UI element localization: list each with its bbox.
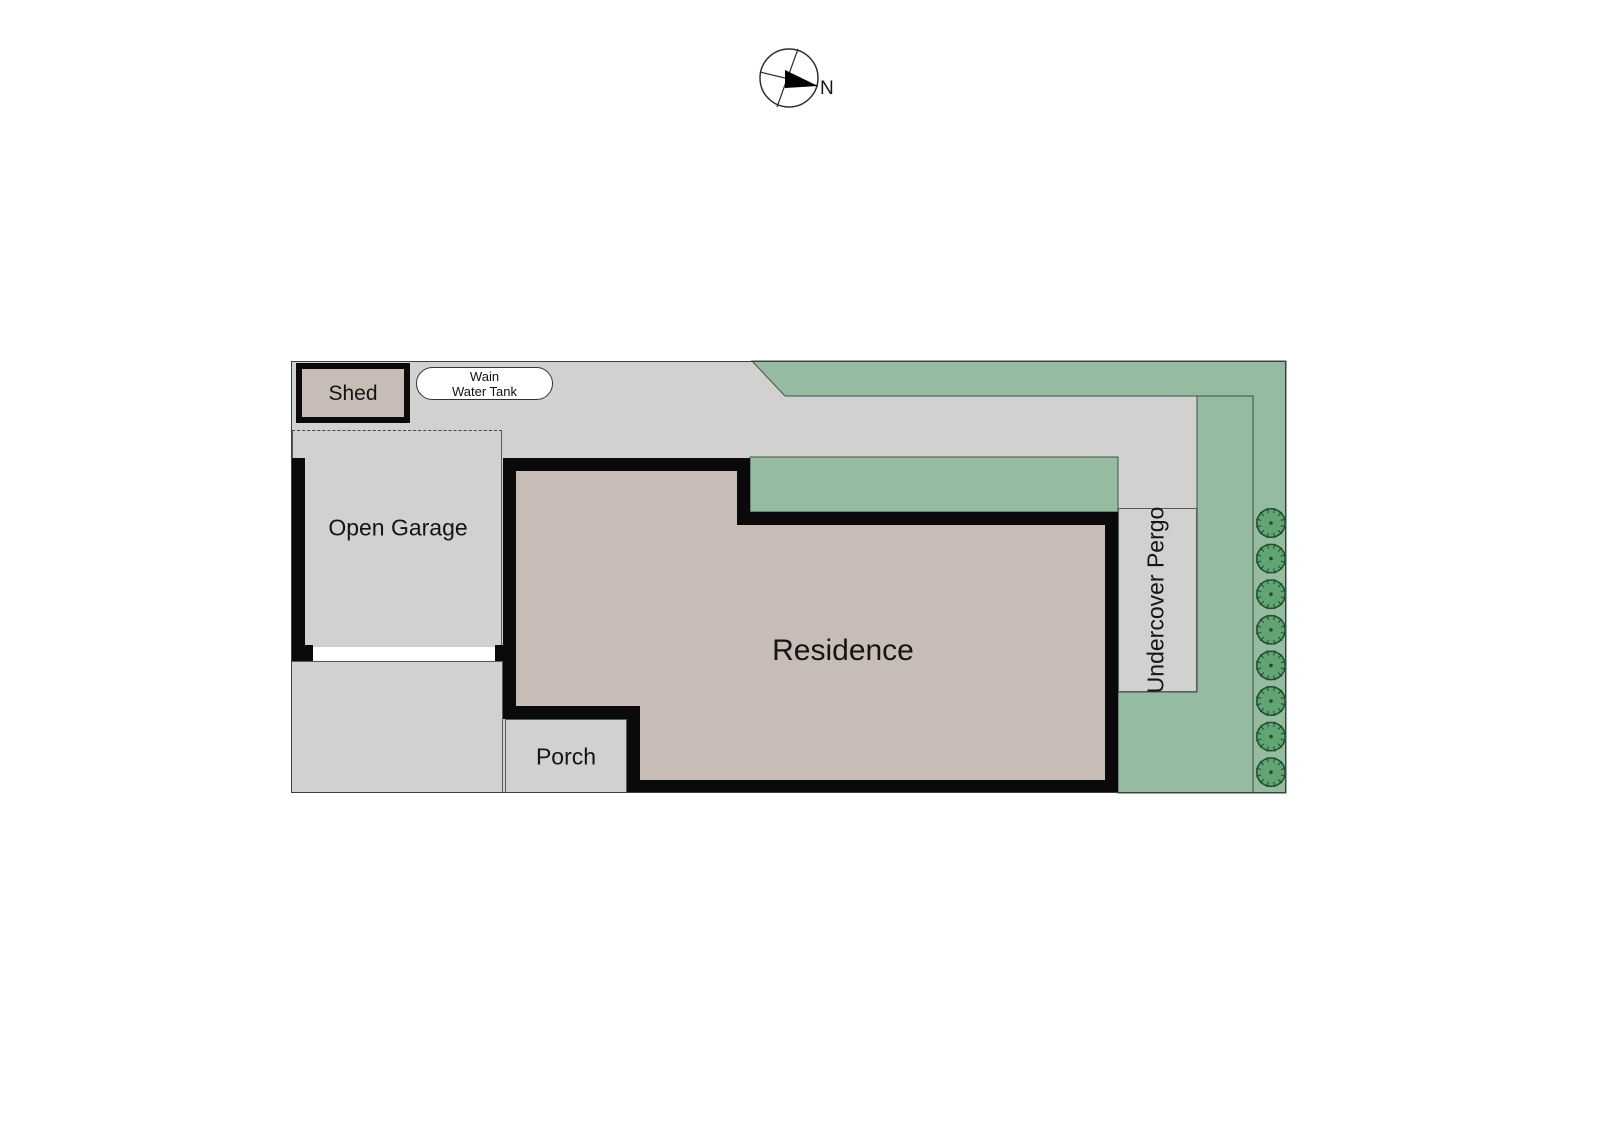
- shed-label: Shed: [328, 382, 377, 406]
- porch-label: Porch: [536, 744, 596, 771]
- garage-wall-stub-left: [291, 645, 313, 661]
- garage-wall-stub-right: [495, 645, 517, 661]
- residence-label: Residence: [772, 634, 914, 668]
- open-garage-label: Open Garage: [328, 515, 467, 542]
- compass-rose: [740, 30, 860, 125]
- compass-north-label: N: [820, 78, 834, 100]
- water-tank-label: Wain Water Tank: [452, 369, 517, 399]
- undercover-pergola-label: Undercover Pergo: [1143, 507, 1170, 694]
- water-tank-label-line2: Water Tank: [452, 384, 517, 399]
- site-plan-page: N Open Garage Porch Undercover Pergo Res…: [0, 0, 1600, 1131]
- water-tank-label-line1: Wain: [452, 369, 517, 384]
- water-tank: Wain Water Tank: [416, 367, 553, 400]
- garage-door-opening: [313, 647, 495, 661]
- garage-left-wall: [291, 458, 305, 660]
- front-courtyard-area: [291, 661, 503, 793]
